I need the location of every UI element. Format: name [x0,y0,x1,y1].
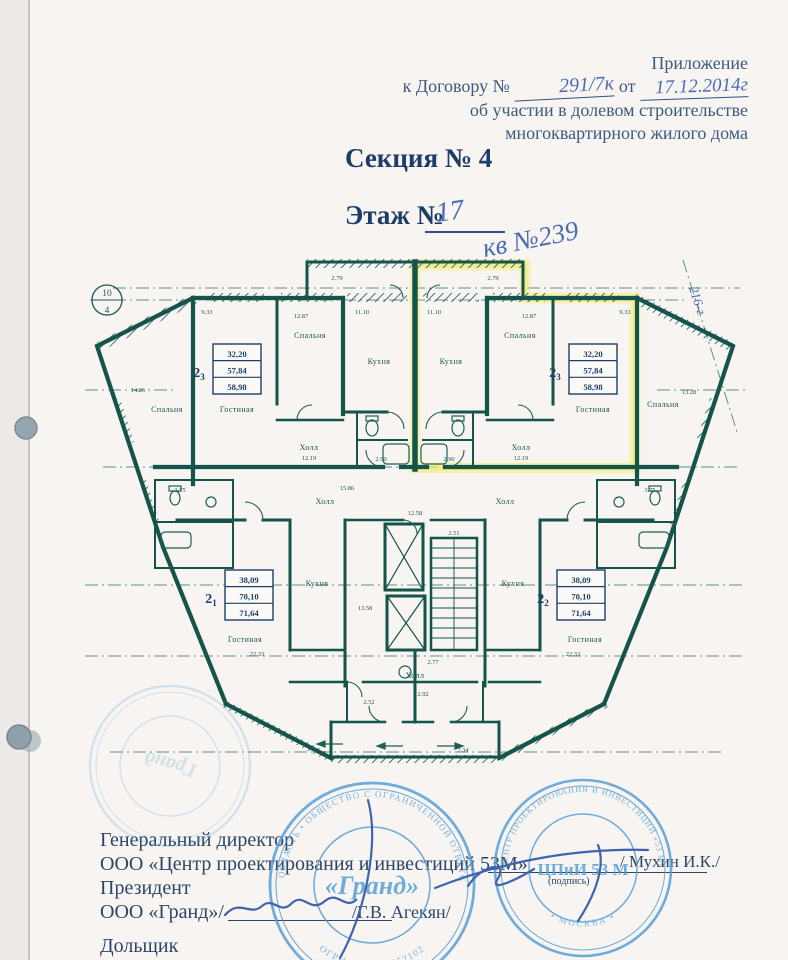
room-label: Гостиная [568,635,602,644]
unit-number: 22 [537,592,549,608]
floor-plan: 10 4 [85,252,745,792]
dim: 2.79 [487,275,498,282]
footer-org2: ООО «Гранд»/ [100,900,224,924]
dim: 12.19 [514,455,528,462]
unit-number: 23 [549,366,561,382]
unit-upper-right: 32,20 57,84 58,98 23 [549,344,617,394]
area-value: 70,10 [239,592,258,602]
header-line1: Приложение [370,52,748,75]
room-label: Холл [406,671,425,680]
dim: 2.51 [448,530,459,537]
header-line4: многоквартирного жилого дома [370,122,748,145]
room-label: Холл [512,443,531,452]
dim: 11.10 [427,309,441,316]
dim: 11.10 [355,309,369,316]
unit-lower-left: 38,09 70,10 71,64 21 [205,570,273,620]
dim: 9.33 [201,309,212,316]
grand-stamp-ring-bottom: ОГРН 1045010552102 [317,944,427,960]
hole-punches [0,0,60,960]
dim: 3.75 [644,487,655,494]
dim: 2.79 [331,275,342,282]
footer-role2: Президент [100,876,191,900]
dim: 2.52 [363,699,374,706]
contract-label: к Договору № [403,76,510,96]
contract-number-handwritten: 291/7к [514,72,615,101]
signer-name-2: /Г.В. Агекян/ [352,900,451,924]
room-label: Гостиная [228,635,262,644]
signature-agekyan-stroke [340,800,372,958]
axis-marker-bottom: 4 [105,306,110,316]
floor-value-handwritten: 17 [434,194,466,230]
dim: 12.87 [294,313,309,320]
area-value: 38,09 [239,575,258,585]
dim: 13.58 [358,605,372,612]
dim: 9.33 [619,309,630,316]
dim: 22.33 [566,651,580,658]
footer-role1: Генеральный директор [100,828,294,852]
dim: 2.92 [417,691,428,698]
header-line2: к Договору № 291/7к от 17.12.2014г [370,75,748,99]
room-label: Гостиная [220,405,254,414]
dim: 14.26 [131,387,145,394]
area-value: 57,84 [583,366,603,376]
dim: 7.34 [457,747,469,754]
contract-date-handwritten: 17.12.2014г [640,73,749,101]
dim: 2.90 [443,456,454,463]
hole-punch-bottom [7,725,31,749]
unit-number: 21 [205,592,217,608]
area-value: 71,64 [239,608,259,618]
room-label: Спальня [294,331,326,340]
dim: 15.86 [340,485,354,492]
section-title: Секция № 4 [345,143,492,174]
signature-agekyan [225,898,356,915]
area-value: 57,84 [227,366,247,376]
scanned-page: Приложение к Договору № 291/7к от 17.12.… [0,0,788,960]
room-label: Кухня [502,579,525,588]
dim: 13.28 [682,389,696,396]
dim: 12.87 [522,313,537,320]
hole-punch-top [15,417,37,439]
escape-arrows [317,741,463,749]
area-value: 70,10 [571,592,590,602]
room-label: Холл [316,497,335,506]
room-label: Холл [496,497,515,506]
contract-from-label: от [619,76,636,96]
unit-lower-right: 38,09 70,10 71,64 22 [537,570,605,620]
unit-upper-left: 32,20 57,84 58,98 23 [193,344,261,394]
room-label: Кухня [368,357,391,366]
room-label: Гостиная [576,405,610,414]
unit-number: 23 [193,366,205,382]
signer-name-1: / Мухин И.К./ [620,850,720,874]
area-value: 58,98 [227,382,247,392]
dim: 3.75 [174,487,185,494]
header-line3: об участии в долевом строительстве [370,99,748,122]
dim: 12.19 [302,455,316,462]
dim: 22.33 [250,651,264,658]
area-value: 71,64 [571,608,591,618]
room-label: Холл [300,443,319,452]
area-value: 38,09 [571,575,590,585]
room-label: Кухня [306,579,329,588]
area-value: 58,98 [583,382,603,392]
room-label: Кухня [440,357,463,366]
plan-handwritten-note: 216-г [686,284,709,316]
dim: 2.90 [375,456,386,463]
header-block: Приложение к Договору № 291/7к от 17.12.… [370,52,748,145]
axis-marker: 10 4 [92,285,122,316]
area-value: 32,20 [227,349,246,359]
dim: 12.58 [408,510,422,517]
signature-caption: (подпись) [548,876,590,887]
floor-label: Этаж № [345,200,444,231]
cpii-stamp-ring-bottom: • МОСКВА • [549,911,617,929]
room-label: Спальня [151,405,183,414]
footer-org1: ООО «Центр проектирования и инвестиций 5… [100,852,528,876]
axis-marker-top: 10 [102,289,112,299]
room-label: Спальня [504,331,536,340]
room-label: Спальня [647,400,679,409]
area-value: 32,20 [583,349,602,359]
dim: 2.77 [427,659,439,666]
footer-role3: Дольщик [100,934,178,958]
